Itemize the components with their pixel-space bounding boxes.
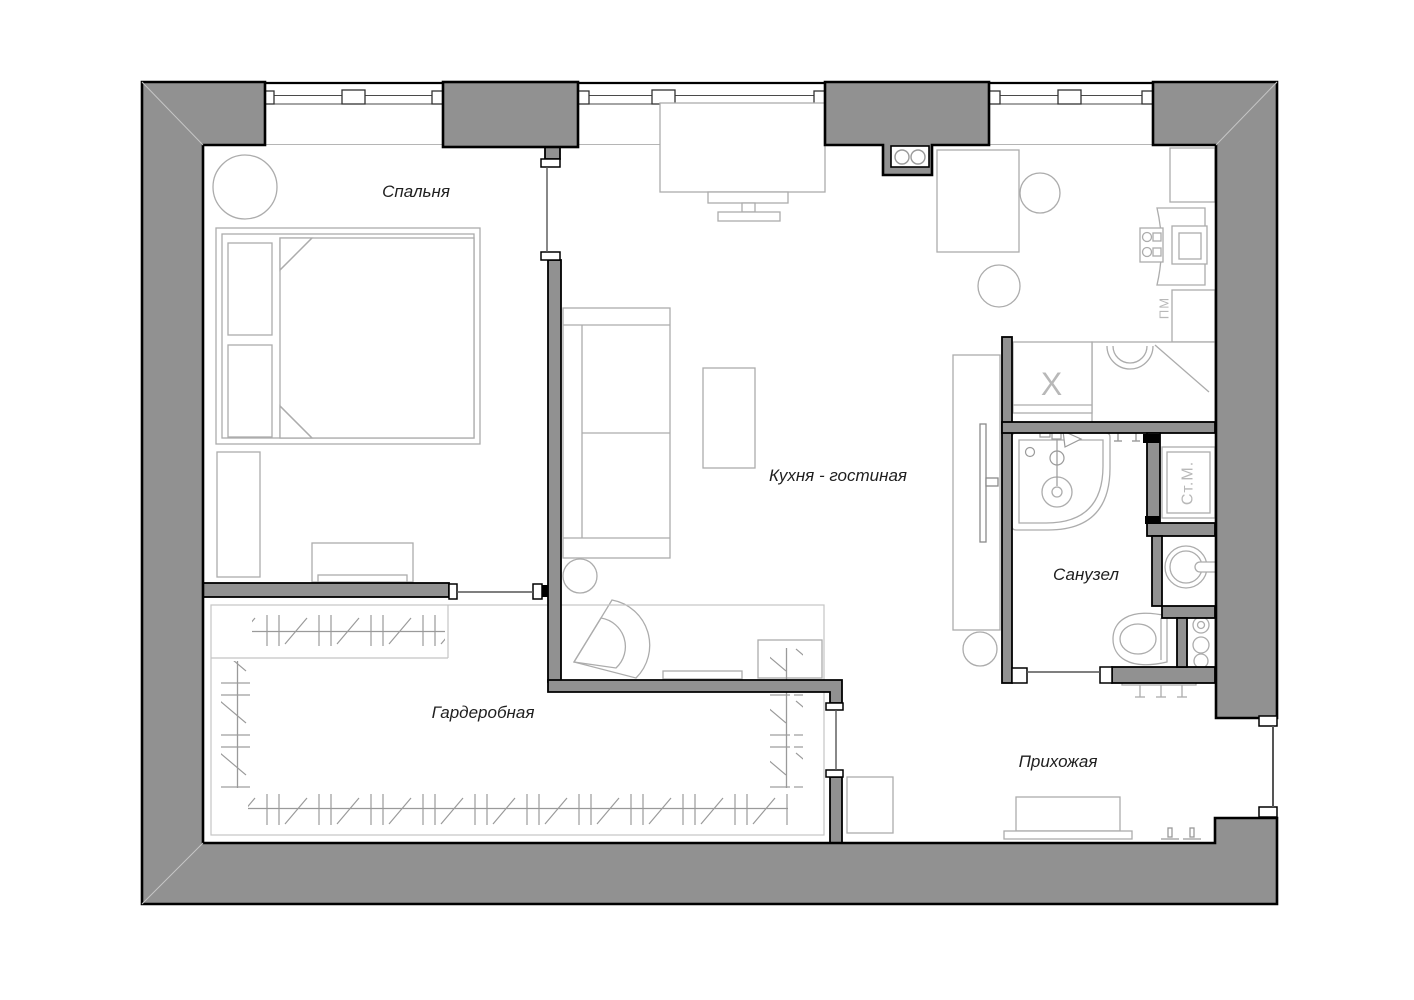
vent-box [891, 146, 929, 167]
cooktop [1140, 228, 1163, 262]
room-label-bedroom: Спальня [382, 182, 450, 201]
bedroom-dresser [312, 543, 413, 582]
stool [963, 632, 997, 666]
wall-panel-separator [1177, 618, 1187, 667]
floor-plan-drawing: Спальня Кухня - гостиная Гардеробная Сан… [0, 0, 1414, 1000]
blanket [280, 238, 474, 438]
tv-console [660, 103, 825, 221]
water-heater [1165, 546, 1221, 588]
hall-cabinet [847, 777, 893, 833]
toilet [1113, 613, 1167, 664]
label-fridge: X [1041, 366, 1063, 402]
room-label-wardrobe: Гардеробная [432, 703, 535, 722]
pillow [228, 243, 272, 335]
wall-bedroom-wardrobe [203, 583, 449, 597]
window-mullions [263, 90, 1153, 104]
pillow [228, 345, 272, 437]
side-table [563, 559, 597, 593]
shoe-bench [1004, 797, 1132, 839]
pillar-1 [443, 82, 578, 147]
room-label-kitchen-living: Кухня - гостиная [769, 466, 907, 485]
dining-set [937, 150, 1060, 307]
electrical-panel [1187, 612, 1215, 668]
room-label-bathroom: Санузел [1053, 565, 1119, 584]
sofa [563, 308, 670, 558]
label-dishwasher: ПМ [1157, 297, 1172, 319]
oven [1172, 226, 1207, 264]
wall-wm-niche-bottom [1147, 523, 1215, 536]
dining-chair [978, 265, 1020, 307]
wall-wardrobe-hall [830, 777, 842, 843]
media-shelf [663, 671, 742, 679]
wall-wm-niche [1147, 433, 1160, 523]
bed [216, 228, 480, 444]
label-washing-machine: Ст.М. [1180, 461, 1197, 505]
corner-counter [1092, 342, 1215, 422]
armchair [574, 600, 650, 678]
room-label-hallway: Прихожая [1019, 752, 1098, 771]
shower-tray [1012, 426, 1110, 530]
upper-counter [1170, 148, 1215, 202]
wall-kitchen-hall [1002, 337, 1012, 683]
wall-tv [980, 424, 986, 542]
dining-table [937, 150, 1019, 252]
coffee-table [703, 368, 755, 468]
wall-bedroom-kitchen [548, 260, 561, 682]
bedroom-chair [213, 155, 277, 219]
wall-boiler-niche [1152, 536, 1162, 606]
nightstand [217, 452, 260, 577]
wall-boiler-niche-bottom [1162, 606, 1215, 618]
wall-bathroom-bottom [1112, 667, 1215, 683]
floor-valves [1161, 828, 1201, 839]
floor-plan-page: Спальня Кухня - гостиная Гардеробная Сан… [0, 0, 1414, 1000]
pillar-stub [545, 147, 560, 159]
bedroom-furniture [213, 155, 480, 582]
dining-chair [1020, 173, 1060, 213]
tv-panel-unit [953, 355, 1000, 666]
dishwasher-counter [1172, 290, 1215, 342]
wall-bathroom-top [1002, 422, 1215, 433]
